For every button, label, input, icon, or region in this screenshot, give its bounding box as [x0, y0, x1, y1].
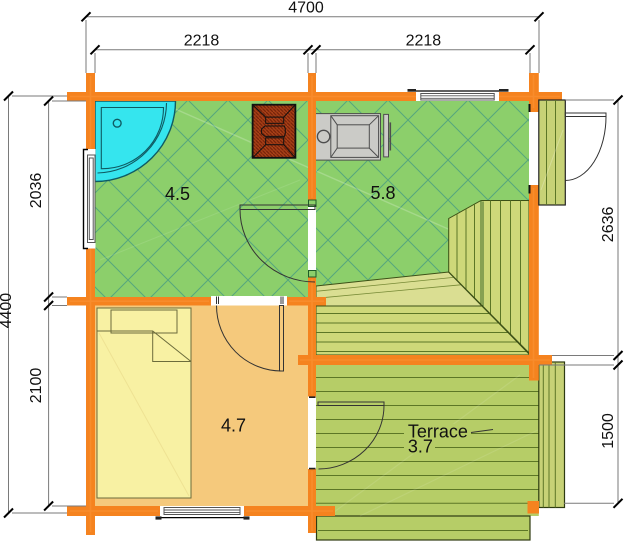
svg-text:4.5: 4.5: [165, 184, 190, 204]
svg-text:4.7: 4.7: [221, 416, 246, 436]
svg-text:3.7: 3.7: [408, 436, 433, 456]
svg-text:2036: 2036: [28, 173, 45, 209]
svg-text:4400: 4400: [0, 293, 15, 329]
svg-text:2218: 2218: [184, 32, 220, 49]
svg-text:4700: 4700: [288, 0, 324, 17]
svg-text:2218: 2218: [406, 32, 442, 49]
svg-text:1500: 1500: [600, 413, 617, 449]
svg-text:2636: 2636: [600, 207, 617, 243]
svg-text:5.8: 5.8: [370, 183, 395, 203]
svg-text:2100: 2100: [28, 368, 45, 404]
